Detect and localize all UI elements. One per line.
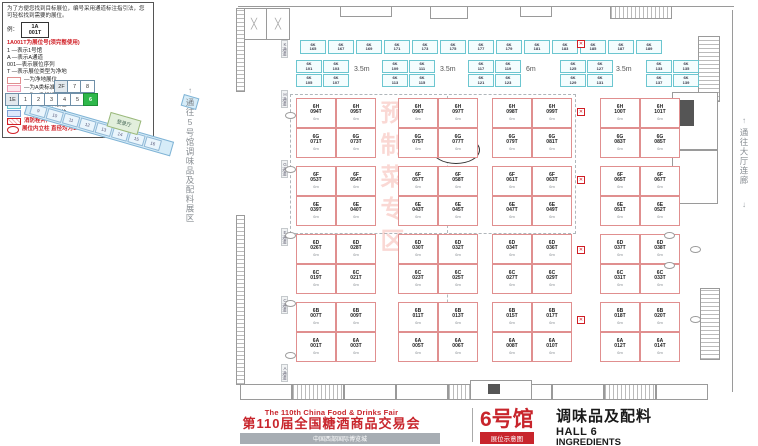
stairwell-topleft-2: ╳ [266,8,290,40]
small-booth-cell: 6K119 [495,60,521,73]
small-booth-cell: 6K189 [636,40,662,54]
booth-cell: 6D038T6m [640,234,680,264]
booth-cell: 6H094T6m [296,98,336,128]
stairs-right-bottom [700,288,720,360]
booth-cell: 6A001T6m [296,332,336,362]
booth-cell: 6C019T6m [296,264,336,294]
minimap-hall-6: 6 [83,93,98,106]
small-booth-cell: 6K169 [356,40,382,54]
booth-cell: 6F053T6m [296,166,336,196]
bottom-wall-segment [604,384,656,400]
booth-cell: 6C025T6m [438,264,478,294]
legend-decode-line: 001—表示展位序列 [7,62,149,69]
legend-example-booth: 1A 001T [21,22,49,38]
legend-example-bottom: 001T [29,30,42,36]
booth-cell: 6E052T6m [640,196,680,226]
booth-cell: 6B015T6m [492,302,532,332]
top-wall-room-4 [610,6,672,19]
booth-cell: 6G073T6m [336,128,376,158]
pillar-icon [690,316,701,323]
booth-cell: 6A012T6m [600,332,640,362]
legend-type-label: —为净地展位 [24,77,57,84]
top-wall-room-2 [430,6,468,19]
booth-cell: 6E040T6m [336,196,376,226]
small-booth-cell: 6K177 [468,40,494,54]
small-booth-cell: 6K109 [382,60,408,73]
booth-cell: 6D037T6m [600,234,640,264]
legend-decode-lines: 1 —表示1号馆A —表示A通道001—表示展位序列T —表示展位类型为净地 [7,48,149,77]
bottom-wall-segment [656,384,708,400]
bottom-wall-segment [396,384,448,400]
booth-cell: 6B011T6m [398,302,438,332]
small-booth-cell: 6K103 [323,60,349,73]
small-booth-cell: 6K139 [673,74,699,87]
fire-hydrant-icon: ✕ [577,176,585,184]
fire-hydrant-icon: ✕ [577,246,585,254]
small-booth-cell: 6K131 [587,74,613,87]
minimap-hall-8: 8 [80,80,95,93]
booth-cell: 6E045T6m [438,196,478,226]
booth-cell: 6A008T6m [492,332,532,362]
small-booth-cell: 6K175 [440,40,466,54]
booth-cell: 6D028T6m [336,234,376,264]
fire-hydrant-icon: ✕ [577,108,585,116]
legend-decode-line: T —表示展位类型为净地 [7,69,149,76]
dimension-label: 6m [526,66,536,73]
footer-hall-block: 6号馆 展位示意图 [480,409,534,444]
right-corridor-arrow-up: ↑ [742,116,746,125]
pillar-icon [285,112,296,119]
small-booth-cell: 6K113 [382,74,408,87]
pillar-icon [7,126,19,134]
booth-cell: 6A005T6m [398,332,438,362]
small-booth-cell: 6K111 [409,60,435,73]
top-wall-room-3 [520,6,552,17]
booth-cell: 6F054T6m [336,166,376,196]
booth-cell: 6B007T6m [296,302,336,332]
small-booth-cell: 6K115 [409,74,435,87]
minimap-hall-10: 10 [46,108,64,123]
booth-cell: 6E047T6m [492,196,532,226]
booth-cell: 6D026T6m [296,234,336,264]
booth-cell: 6A006T6m [438,332,478,362]
booth-cell: 6B013T6m [438,302,478,332]
small-booth-cell: 6K129 [560,74,586,87]
category-cn: 调味品及配料 [556,409,652,426]
booth-cell: 6G075T6m [398,128,438,158]
dimension-label: 3.5m [354,66,370,73]
booth-cell: 6C029T6m [532,264,572,294]
small-booth-cell: 6K121 [468,74,494,87]
bottom-wall-segment [344,384,396,400]
small-booth-cell: 6K167 [328,40,354,54]
small-booth-cell: 6K117 [468,60,494,73]
booth-cell: 6H100T6m [600,98,640,128]
small-booth-cell: 6K101 [296,60,322,73]
aisle-label-A: A通道 [281,364,288,382]
minimap-hall-11: 11 [62,113,80,128]
booth-cell: 6G079T6m [492,128,532,158]
booth-cell: 6F057T6m [398,166,438,196]
small-booth-cell: 6K137 [646,74,672,87]
booth-cell: 6C021T6m [336,264,376,294]
right-corridor-arrow-down: ↓ [742,200,746,209]
booth-cell: 6D032T6m [438,234,478,264]
legend-intro: 为了方便您找到目标展位，编号采用通道标注指引法，您可轻松找到需要的展位。 [7,6,149,20]
hall-name-cn: 6号馆 [480,409,534,430]
left-wall-lower [236,215,245,385]
booth-cell: 6H098T6m [492,98,532,128]
dimension-label: 3.5m [616,66,632,73]
legend-example-caption: 例： [7,27,18,34]
footer-left-block: The 110th China Food & Drinks Fair 第110届… [200,408,463,444]
fire-hydrant-icon: ✕ [577,40,585,48]
fair-title-cn: 第110届全国糖酒商品交易会 [200,417,463,432]
floorplan-page: 为了方便您找到目标展位，编号采用通道标注指引法，您可轻松找到需要的展位。 例： … [0,0,758,446]
booth-cell: 6F065T6m [600,166,640,196]
right-corridor-label: 通往大厅连廊 [738,128,750,185]
booth-cell: 6A003T6m [336,332,376,362]
service-core [680,100,694,126]
small-booth-cell: 6K135 [673,60,699,73]
right-wall [732,10,733,392]
small-booth-cell: 6K171 [384,40,410,54]
left-corridor-label: 通往5号馆调味品及配料展区 [184,98,196,223]
small-booth-cell: 6K125 [560,60,586,73]
booth-cell: 6F063T6m [532,166,572,196]
legend-decode-line: A —表示A通道 [7,55,149,62]
legend-decode-line: 1 —表示1号馆 [7,48,149,55]
bottom-entrance-structure [470,380,532,400]
small-booth-cell: 6K123 [495,74,521,87]
booth-cell: 6G077T6m [438,128,478,158]
booth-cell: 6H095T6m [336,98,376,128]
booth-cell: 6C033T6m [640,264,680,294]
booth-cell: 6A010T6m [532,332,572,362]
booth-cell: 6G085T6m [640,128,680,158]
hall-name-en: HALL 6 [556,426,652,438]
booth-cell: 6C027T6m [492,264,532,294]
booth-cell: 6B009T6m [336,302,376,332]
booth-cell: 6C023T6m [398,264,438,294]
pillar-icon [690,246,701,253]
booth-cell: 6A014T6m [640,332,680,362]
pillar-icon [285,300,296,307]
bottom-core [488,384,500,394]
category-en: INGREDIENTS [556,438,652,446]
map-badge: 展位示意图 [480,432,534,444]
minimap-hall-16: 16 [144,136,162,151]
dimension-label: 3.5m [440,66,456,73]
small-booth-cell: 6K179 [496,40,522,54]
booth-cell: 6E049T6m [532,196,572,226]
small-booth-cell: 6K181 [524,40,550,54]
booth-cell: 6E051T6m [600,196,640,226]
pillar-icon [664,232,675,239]
booth-cell: 6D036T6m [532,234,572,264]
pillar-icon [664,262,675,269]
bottom-wall-segment [240,384,292,400]
small-booth-cell: 6K187 [608,40,634,54]
fire-hydrant-icon: ✕ [577,316,585,324]
bottom-wall-segment [292,384,344,400]
aisle-label-H: H通道 [281,90,288,108]
bottom-wall-segment [552,384,604,400]
top-wall-room-1 [340,6,392,17]
small-booth-cell: 6K107 [323,74,349,87]
left-wall-upper [236,8,245,92]
booth-cell: 6H101T6m [640,98,680,128]
pillar-icon [285,166,296,173]
booth-cell: 6H099T6m [532,98,572,128]
booth-cell: 6C031T6m [600,264,640,294]
small-booth-cell: 6K173 [412,40,438,54]
booth-cell: 6B017T6m [532,302,572,332]
booth-type-swatch [7,110,21,117]
booth-cell: 6D034T6m [492,234,532,264]
booth-type-swatch [7,77,21,84]
small-booth-cell: 6K105 [296,74,322,87]
booth-cell: 6B018T6m [600,302,640,332]
booth-cell: 6D030T6m [398,234,438,264]
booth-cell: 6H097T6m [438,98,478,128]
booth-cell: 6F067T6m [640,166,680,196]
pillar-icon [285,232,296,239]
booth-cell: 6G081T6m [532,128,572,158]
booth-cell: 6E039T6m [296,196,336,226]
footer-category-block: 调味品及配料 HALL 6 INGREDIENTS [556,409,652,446]
footer-divider [472,408,473,442]
minimap-hall-12: 12 [78,117,96,132]
booth-cell: 6B020T6m [640,302,680,332]
left-corridor-arrow-up: ↑ [188,86,192,95]
aisle-label-K: K通道 [281,40,288,58]
booth-cell: 6E043T6m [398,196,438,226]
pillar-icon [285,352,296,359]
legend-note-red: 1A001T为展位号(须完整使用) [7,40,149,47]
small-booth-cell: 6K127 [587,60,613,73]
booth-cell: 6H096T6m [398,98,438,128]
booth-cell: 6G071T6m [296,128,336,158]
small-booth-cell: 6K183 [552,40,578,54]
left-corridor-arrow-down: ↓ [188,212,192,221]
fire-hatch-swatch [7,118,21,125]
small-booth-cell: 6K133 [646,60,672,73]
booth-cell: 6F061T6m [492,166,532,196]
booth-cell: 6G083T6m [600,128,640,158]
small-booth-cell: 6K165 [300,40,326,54]
booth-cell: 6F058T6m [438,166,478,196]
booth-type-swatch [7,85,21,92]
venue-banner: 中国西部国际博览城 [240,433,440,444]
